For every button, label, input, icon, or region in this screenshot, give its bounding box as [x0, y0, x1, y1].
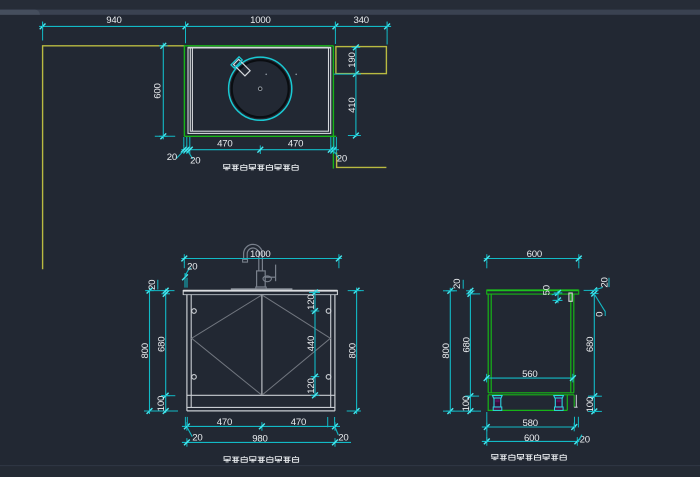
svg-text:20: 20 [338, 432, 348, 443]
svg-text:20: 20 [190, 156, 200, 167]
svg-text:470: 470 [217, 139, 232, 150]
svg-text:20: 20 [167, 152, 177, 163]
svg-text:100: 100 [461, 396, 472, 411]
svg-text:800: 800 [348, 343, 359, 358]
svg-text:1000: 1000 [250, 249, 271, 260]
svg-text:600: 600 [524, 433, 539, 444]
svg-text:190: 190 [347, 52, 358, 67]
svg-text:800: 800 [441, 343, 452, 358]
svg-text:0: 0 [595, 312, 606, 317]
svg-text:980: 980 [252, 434, 267, 445]
svg-text:600: 600 [153, 83, 164, 98]
svg-text:560: 560 [522, 369, 537, 380]
svg-text:800: 800 [140, 343, 151, 358]
svg-text:20: 20 [452, 279, 463, 289]
svg-text:680: 680 [156, 337, 167, 352]
svg-text:470: 470 [217, 417, 232, 428]
svg-text:340: 340 [353, 15, 368, 26]
svg-text:470: 470 [291, 417, 306, 428]
svg-text:600: 600 [527, 249, 542, 260]
svg-text:580: 580 [522, 418, 537, 429]
svg-text:20: 20 [187, 261, 197, 272]
svg-text:100: 100 [156, 396, 167, 411]
svg-text:120: 120 [306, 378, 317, 393]
svg-text:20: 20 [192, 432, 202, 443]
svg-text:940: 940 [106, 15, 121, 26]
svg-text:120: 120 [306, 294, 317, 309]
svg-text:680: 680 [461, 337, 472, 352]
svg-text:100: 100 [585, 397, 596, 412]
svg-text:50: 50 [541, 285, 552, 295]
svg-text:440: 440 [306, 336, 317, 351]
svg-text:470: 470 [288, 139, 303, 150]
svg-text:410: 410 [347, 97, 358, 112]
svg-text:680: 680 [585, 337, 596, 352]
svg-text:1000: 1000 [250, 15, 271, 26]
svg-text:20: 20 [147, 280, 158, 290]
svg-text:20: 20 [337, 153, 347, 164]
